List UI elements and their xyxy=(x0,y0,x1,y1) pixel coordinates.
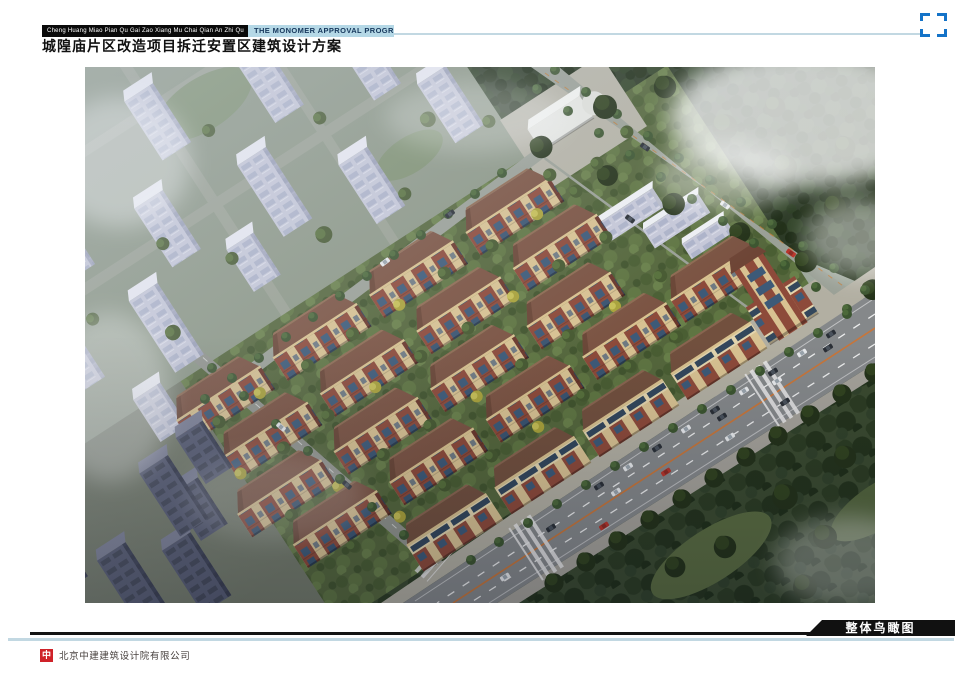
bracket-corner xyxy=(937,13,947,21)
footer-rule-blue xyxy=(8,638,954,641)
bracket-corner xyxy=(920,29,930,37)
aerial-rendering-svg xyxy=(85,67,875,603)
view-caption-flag: 整体鸟瞰图 xyxy=(806,620,955,636)
bracket-corner xyxy=(937,29,947,37)
view-caption-text: 整体鸟瞰图 xyxy=(845,621,915,635)
page-title: 城隍庙片区改造项目拆迁安置区建筑设计方案 xyxy=(42,36,342,56)
logo-glyph: 中 xyxy=(42,650,51,660)
footer-rule-black xyxy=(30,632,820,635)
company-name: 北京中建建筑设计院有限公司 xyxy=(59,648,190,662)
header-rule xyxy=(394,33,920,35)
company-row: 中 北京中建建筑设计院有限公司 xyxy=(40,648,190,662)
company-logo-icon: 中 xyxy=(40,649,53,662)
shade-overlay xyxy=(85,67,875,603)
bracket-corner xyxy=(920,13,930,21)
fullscreen-brackets-icon[interactable] xyxy=(920,13,947,37)
presentation-page: Cheng Huang Miao Pian Qu Gai Zao Xiang M… xyxy=(0,0,960,679)
aerial-rendering-image xyxy=(85,67,875,603)
